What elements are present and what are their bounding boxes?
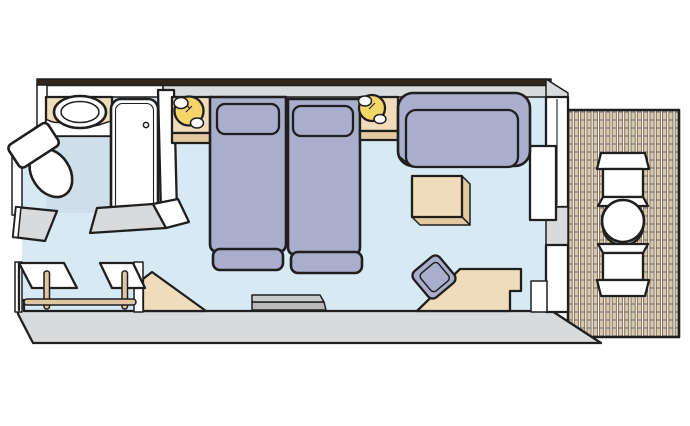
stateroom-floor-plan [0,0,690,426]
coffee-table-top [412,176,462,217]
balcony-chair-bottom-front [598,244,648,253]
partition-wall-lower [546,245,568,312]
bed-right-foot [291,252,362,273]
balcony-round-table [602,200,644,245]
twin-bed-left [210,97,286,270]
balcony-table-top [602,200,644,242]
bathtub-drain [143,122,148,127]
coffee-table [412,176,470,225]
balcony-chair-bottom-backrest [597,280,649,296]
sofa [398,93,530,167]
partition-wall-return [531,281,547,312]
sink-vanity [46,96,112,136]
bathtub [111,99,158,215]
bed-right-pillow [293,106,353,136]
nightstand-left-front [172,133,212,143]
balcony-chair-top-backrest [597,153,649,169]
bathtub-outer [111,99,158,215]
wall-shelf-top [252,295,324,302]
wall-shelf-front [252,302,326,310]
bed-left-foot [213,249,283,270]
sliding-glass-door [530,146,556,220]
balcony-chair-top [597,153,649,206]
floor-plan-canvas [0,0,690,426]
balcony-chair-bottom-seat [603,253,643,280]
balcony-chair-top-seat [603,169,643,197]
balcony-chair-bottom [597,244,649,296]
top-wall-face-bathroom [46,86,163,98]
lamp-left-highlight [174,98,188,109]
lamp-left-base [191,118,204,128]
twin-bed-right [288,99,362,273]
wardrobe-hanging-rail [24,299,136,305]
wall-shelf [252,295,326,310]
bed-left-pillow [217,104,279,134]
lamp-right-base [374,115,386,124]
coffee-table-side-front [412,217,470,225]
nightstand-right-front [360,131,398,140]
balcony [568,110,679,337]
sofa-seat [406,110,518,167]
lamp-right-highlight [359,96,372,106]
top-wall [37,79,551,86]
